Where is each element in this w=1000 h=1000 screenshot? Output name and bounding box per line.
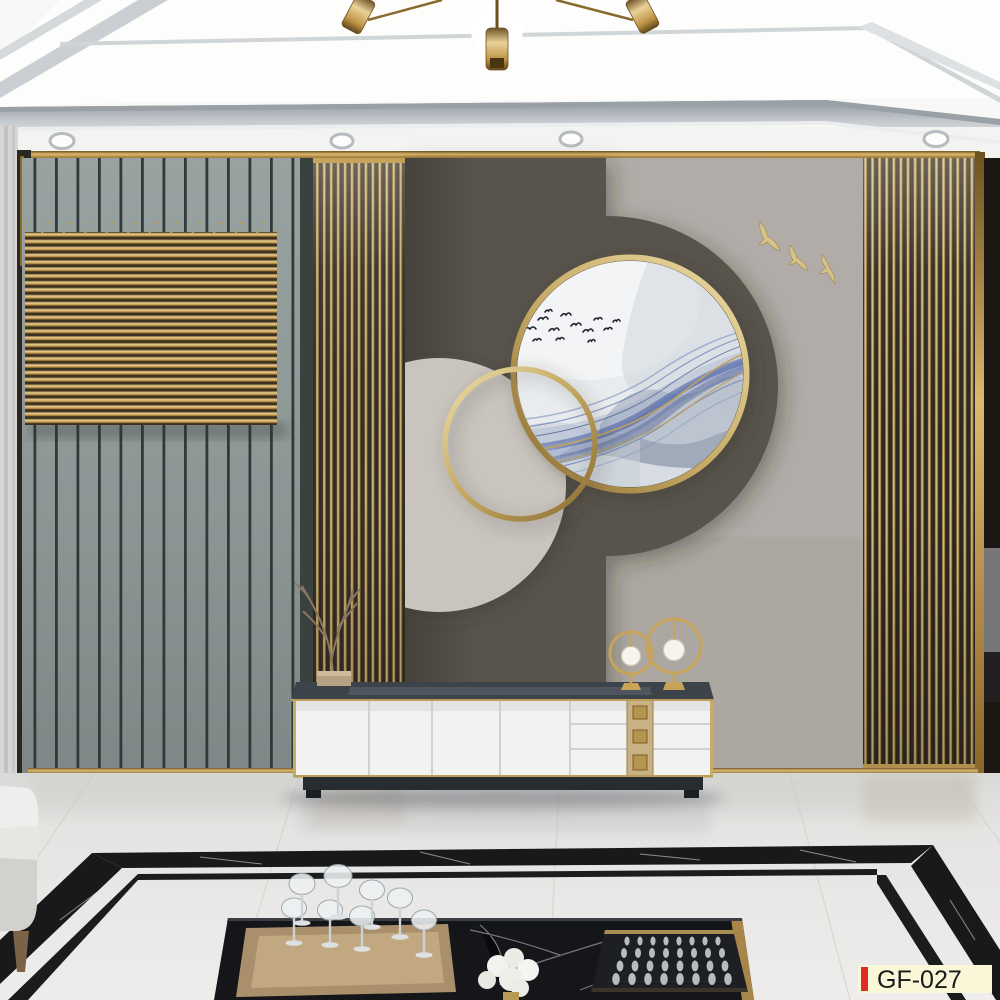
svg-text:GF-027: GF-027 <box>877 966 962 994</box>
